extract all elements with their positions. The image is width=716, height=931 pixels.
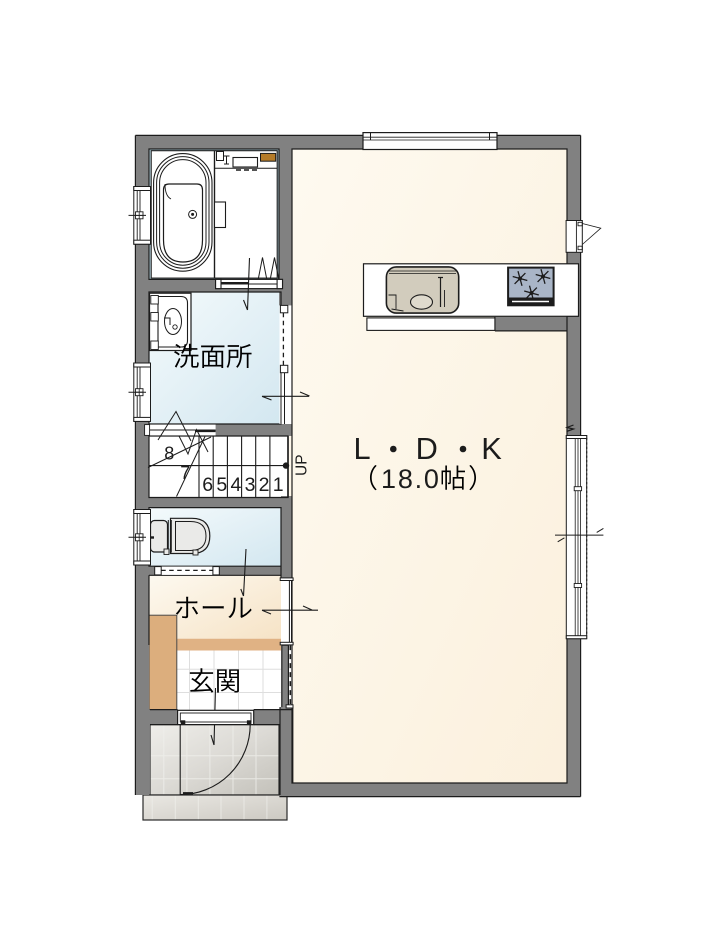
svg-text:K: K	[481, 431, 502, 466]
svg-text:L: L	[354, 431, 371, 466]
svg-text:1: 1	[273, 474, 284, 496]
svg-text:8: 8	[164, 443, 174, 463]
svg-text:18.0: 18.0	[381, 464, 441, 494]
svg-text:6: 6	[202, 474, 213, 496]
svg-text:2: 2	[259, 474, 270, 496]
svg-text:5: 5	[216, 474, 227, 496]
svg-text:UP: UP	[294, 454, 311, 476]
svg-text:7: 7	[180, 463, 190, 483]
svg-text:4: 4	[230, 474, 241, 496]
svg-text:3: 3	[245, 474, 256, 496]
svg-text:D: D	[416, 431, 438, 466]
